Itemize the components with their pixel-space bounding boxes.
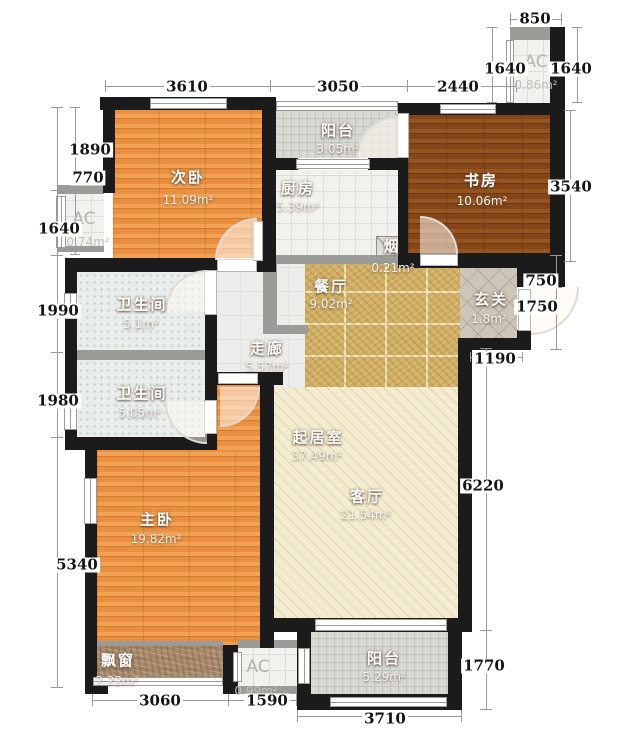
dimension-line xyxy=(51,687,63,688)
dimension-line xyxy=(480,709,492,710)
window xyxy=(150,98,227,109)
dimension-line xyxy=(70,107,80,108)
window xyxy=(298,648,310,684)
dimension-line xyxy=(51,190,63,191)
dimension-label: 1190 xyxy=(472,352,518,367)
dimension-label: 3540 xyxy=(548,180,594,195)
door-opening xyxy=(218,373,258,384)
dimension-line xyxy=(228,694,229,706)
dimension-label: 3050 xyxy=(315,80,361,95)
wall xyxy=(448,632,462,710)
dimension-label: 2440 xyxy=(435,80,481,95)
dimension-label: 3610 xyxy=(164,80,210,95)
dimension-line xyxy=(461,710,462,722)
dimension-line xyxy=(550,349,562,350)
dimension-line xyxy=(510,13,511,25)
gray-wall xyxy=(263,262,277,334)
dimension-line xyxy=(561,13,562,25)
dimension-line xyxy=(296,694,297,706)
dimension-line xyxy=(564,110,576,111)
wall xyxy=(262,109,276,258)
dimension-label: 1980 xyxy=(35,394,81,409)
room-floor-yangtai-bottom xyxy=(311,632,448,694)
dimension-line xyxy=(92,694,93,706)
dimension-label: 1990 xyxy=(35,304,81,319)
gray-wall xyxy=(65,350,217,360)
room-floor-canting xyxy=(305,263,460,387)
dimension-line xyxy=(270,80,271,92)
dimension-label: 6220 xyxy=(460,479,506,494)
dimension-line xyxy=(572,27,582,28)
dimension-line xyxy=(105,80,106,92)
window xyxy=(315,619,447,631)
dimension-label: 750 xyxy=(523,274,558,289)
dimension-line xyxy=(516,80,517,92)
dimension-line xyxy=(297,710,298,722)
dimension-label: 1640 xyxy=(548,62,594,77)
floor-plan: 次卧11.09m²阳台3.05m²厨房5.39m²书房10.06m²AC0.86… xyxy=(0,0,633,730)
window xyxy=(84,478,97,524)
dimension-label: 5340 xyxy=(54,558,100,573)
wall xyxy=(260,372,274,648)
room-floor-ac-bottom xyxy=(238,648,299,686)
room-floor-qijushi xyxy=(274,387,458,618)
dimension-line xyxy=(70,254,80,255)
window xyxy=(330,697,447,707)
dimension-label: 1770 xyxy=(461,659,507,674)
window xyxy=(276,101,398,111)
dimension-line xyxy=(407,80,408,92)
dimension-line xyxy=(51,255,63,256)
window xyxy=(93,677,223,686)
wall xyxy=(276,158,298,170)
dimension-label: 850 xyxy=(517,12,552,27)
dimension-label: 1640 xyxy=(36,222,82,237)
dimension-label: 770 xyxy=(70,171,105,186)
dimension-label: 1640 xyxy=(482,62,528,77)
dimension-line xyxy=(51,107,63,108)
door-opening xyxy=(217,259,257,272)
dimension-line xyxy=(572,102,582,103)
wall xyxy=(65,258,217,272)
window xyxy=(440,104,496,114)
dimension-line xyxy=(480,630,492,631)
dimension-label: 1750 xyxy=(514,300,560,315)
dimension-label: 3710 xyxy=(362,712,408,727)
wall xyxy=(368,158,398,170)
dimension-line xyxy=(51,352,63,353)
gray-wall xyxy=(510,27,550,40)
dimension-line xyxy=(487,27,497,28)
window xyxy=(233,652,242,682)
gray-wall xyxy=(276,255,408,264)
gray-wall xyxy=(277,325,308,334)
room-floor-xuanguan xyxy=(460,263,517,338)
dimension-line xyxy=(564,261,576,262)
door-opening xyxy=(397,113,409,158)
dimension-label: 3060 xyxy=(137,694,183,709)
dimension-label: 1590 xyxy=(244,694,290,709)
dimension-line xyxy=(70,190,80,191)
dimension-line xyxy=(470,352,471,362)
dimension-line xyxy=(487,102,497,103)
window xyxy=(296,159,370,169)
dimension-line xyxy=(522,352,523,362)
gray-wall xyxy=(93,641,223,646)
dimension-line xyxy=(51,437,63,438)
door-opening xyxy=(420,254,458,266)
room-floor-zhuwo xyxy=(97,450,260,646)
dimension-label: 1890 xyxy=(67,143,113,158)
dimension-line xyxy=(550,255,562,256)
